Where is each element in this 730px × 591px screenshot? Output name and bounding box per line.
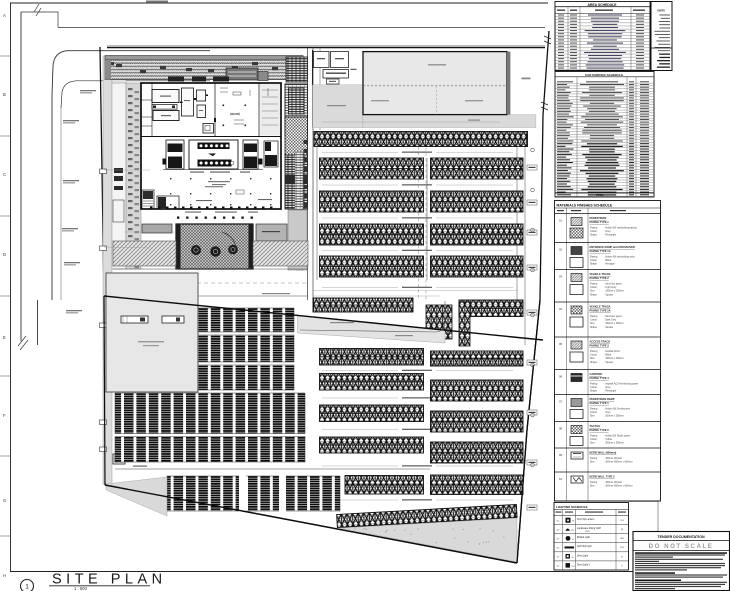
svg-text:Colour: Colour (590, 386, 597, 389)
svg-text:Shape: Shape (590, 234, 598, 237)
svg-text:TOTAL: TOTAL (596, 194, 604, 197)
svg-text:02: 02 (559, 248, 563, 252)
svg-text:Size: Size (590, 322, 595, 325)
svg-text:Colour: Colour (590, 286, 597, 289)
svg-text:Shape: Shape (590, 263, 598, 266)
svg-text:Colour: Colour (590, 438, 597, 441)
svg-text:ENTRANCE RAMP and CROSSOVER: ENTRANCE RAMP and CROSSOVER (590, 245, 635, 249)
svg-text:: Rectangle: : Rectangle (604, 390, 617, 393)
svg-text:07: 07 (559, 400, 563, 404)
svg-text:: Black: : Black (604, 354, 612, 357)
svg-text:DO NOT SCALE: DO NOT SCALE (649, 543, 714, 550)
svg-text:: Dark Grey: : Dark Grey (604, 319, 617, 322)
svg-text:01: 01 (559, 219, 563, 223)
svg-text:: 150mm x 150mm: : 150mm x 150mm (604, 290, 624, 293)
svg-text:06: 06 (559, 375, 563, 379)
svg-text:: 150mm Nil wall: : 150mm Nil wall (604, 481, 622, 484)
svg-text:Colour: Colour (590, 319, 597, 322)
svg-text:Shape: Shape (590, 390, 598, 393)
svg-text:09: 09 (559, 453, 563, 457)
svg-text:: Rectangle: : Rectangle (604, 234, 617, 237)
svg-text:PAVING TYPE 3: PAVING TYPE 3 (590, 344, 610, 348)
svg-text:B: B (3, 92, 6, 97)
svg-text:Colour: Colour (590, 230, 597, 233)
svg-text:Paving: Paving (590, 408, 598, 411)
svg-text:: Hexagon: : Hexagon (604, 263, 616, 266)
svg-text:Size: Size (590, 357, 595, 360)
svg-text:Shape: Shape (590, 326, 598, 329)
svg-text:PAVING TYPE 6: PAVING TYPE 6 (590, 428, 610, 432)
svg-text:: Square: : Square (604, 326, 614, 329)
svg-text:E: E (3, 335, 6, 340)
svg-text:Facing: Facing (590, 481, 598, 484)
svg-text:Paving: Paving (590, 315, 598, 318)
svg-text:SITE PLAN: SITE PLAN (52, 572, 167, 588)
svg-text:: Asphalt AC10: : Asphalt AC10 (604, 350, 620, 353)
svg-text:1: 1 (25, 584, 29, 591)
svg-text:Landscape Fitting 'LED': Landscape Fitting 'LED' (577, 527, 602, 530)
svg-text:Size: Size (590, 415, 595, 418)
svg-text:C: C (3, 172, 6, 177)
svg-text:UNITS: UNITS (657, 9, 665, 13)
svg-text:A: A (3, 13, 6, 18)
svg-text:Post Top Lantern: Post Top Lantern (577, 518, 595, 521)
svg-text:: Light Grey: : Light Grey (604, 286, 617, 289)
svg-text:Shed Light 2: Shed Light 2 (577, 563, 591, 566)
svg-text:: Holcim B/i Tactile paver: : Holcim B/i Tactile paver (604, 435, 630, 438)
svg-text:PAVING TYPE 2: PAVING TYPE 2 (590, 276, 610, 280)
svg-text:'LED': 'LED' (585, 531, 590, 533)
svg-text:F: F (3, 413, 6, 418)
svg-text:Bollard Light: Bollard Light (577, 536, 590, 539)
svg-text:TENDER DOCUMENTATION: TENDER DOCUMENTATION (657, 535, 705, 539)
svg-text:G: G (3, 498, 6, 503)
svg-text:: Black: : Black (604, 259, 612, 262)
svg-text:CAR PARKING SCHEDULE: CAR PARKING SCHEDULE (585, 73, 623, 77)
svg-text:: 150mm x 150mm: : 150mm x 150mm (604, 322, 624, 325)
svg-text:PAVING TYPE 5: PAVING TYPE 5 (590, 401, 610, 405)
svg-text:: 300mm x 300mm: : 300mm x 300mm (604, 442, 624, 445)
svg-text:PEDESTRIAN: PEDESTRIAN (590, 216, 607, 220)
svg-text:08: 08 (559, 427, 563, 431)
svg-text:PAVING TYPE 4: PAVING TYPE 4 (590, 376, 610, 380)
svg-text:Shed Light: Shed Light (577, 554, 588, 557)
svg-text:KERB WALL (900mm): KERB WALL (900mm) (590, 451, 617, 455)
svg-text:: Holcim B/i interlocking pavi: : Holcim B/i interlocking paving (604, 227, 637, 230)
svg-text:: 300mm x 300mm: : 300mm x 300mm (604, 415, 624, 418)
svg-text:: Holcim B/i Greylounlver: : Holcim B/i Greylounlver (604, 408, 631, 411)
svg-text:Size: Size (590, 290, 595, 293)
svg-text:ACCESS TRACK: ACCESS TRACK (590, 340, 611, 344)
svg-text:03: 03 (559, 275, 563, 279)
svg-text:VEHICLE TRACK: VEHICLE TRACK (590, 272, 611, 276)
svg-text:PAVING TYPE 1A: PAVING TYPE 1A (590, 249, 611, 253)
svg-text:Shape: Shape (590, 293, 598, 296)
svg-text:: 300mm 900mm x 600mm: : 300mm 900mm x 600mm (604, 461, 632, 464)
svg-text:H: H (3, 573, 6, 578)
svg-text:Colour: Colour (590, 259, 597, 262)
svg-text:: 300mm 900mm x 600mm: : 300mm 900mm x 600mm (604, 485, 632, 488)
svg-text:Paving: Paving (590, 256, 598, 259)
svg-text:: Semi flex paver: : Semi flex paver (604, 315, 622, 318)
svg-text:Size: Size (590, 485, 595, 488)
svg-text:Shape: Shape (590, 361, 598, 364)
svg-text:04: 04 (559, 307, 563, 311)
svg-text:: Asphalt AC14 reinforcing pav: : Asphalt AC14 reinforcing paver (604, 383, 638, 386)
svg-text:Paving: Paving (590, 350, 598, 353)
svg-text:Paving: Paving (590, 383, 598, 386)
svg-text:: 150mm Nil wall: : 150mm Nil wall (604, 457, 622, 460)
svg-text:1 : 500: 1 : 500 (74, 586, 87, 591)
svg-text:Size: Size (590, 461, 595, 464)
svg-text:Paving: Paving (590, 283, 598, 286)
svg-text:: Grey: : Grey (604, 411, 611, 414)
svg-text:: Yellow: : Yellow (604, 438, 612, 441)
svg-text:05: 05 (559, 342, 563, 346)
svg-text:AREA SCHEDULE: AREA SCHEDULE (587, 3, 617, 7)
svg-text:PAVING TYPE 2A: PAVING TYPE 2A (590, 309, 611, 313)
svg-text:VEHICLE TRACK: VEHICLE TRACK (590, 305, 611, 309)
svg-text:Colour: Colour (590, 354, 597, 357)
svg-text:TACTILE: TACTILE (590, 424, 601, 428)
svg-text:Colour: Colour (590, 411, 597, 414)
svg-text:: Grey: : Grey (604, 386, 611, 389)
svg-text:: 150mm x 150mm: : 150mm x 150mm (604, 357, 624, 360)
svg-text:LED: LED (620, 538, 625, 540)
svg-text:CARPARK: CARPARK (590, 372, 603, 376)
svg-text:: Semi flex paver: : Semi flex paver (604, 283, 622, 286)
svg-text:MATERIALS FINISHES SCHEDULE: MATERIALS FINISHES SCHEDULE (557, 203, 613, 207)
svg-text:Paving: Paving (590, 435, 598, 438)
svg-text:Facing: Facing (590, 457, 598, 460)
svg-text:PAVING TYPE 1: PAVING TYPE 1 (590, 220, 610, 224)
svg-text:: Holcim B/i interlocking sett: : Holcim B/i interlocking setts (604, 256, 635, 259)
svg-text:10: 10 (559, 477, 563, 481)
svg-text:Size: Size (590, 442, 595, 445)
svg-text:Paving: Paving (590, 227, 598, 230)
svg-text:LIGHTING SCHEDULE: LIGHTING SCHEDULE (556, 505, 588, 509)
svg-text:D: D (3, 252, 6, 257)
svg-text:KERB WALL TYPE 2: KERB WALL TYPE 2 (590, 475, 616, 479)
svg-text:: Square: : Square (604, 293, 614, 296)
svg-text:PEDESTRIAN RAMP: PEDESTRIAN RAMP (590, 397, 615, 401)
svg-text:LED Strip light: LED Strip light (577, 545, 592, 548)
svg-text:: Grey: : Grey (604, 230, 611, 233)
svg-text:: Square: : Square (604, 361, 614, 364)
